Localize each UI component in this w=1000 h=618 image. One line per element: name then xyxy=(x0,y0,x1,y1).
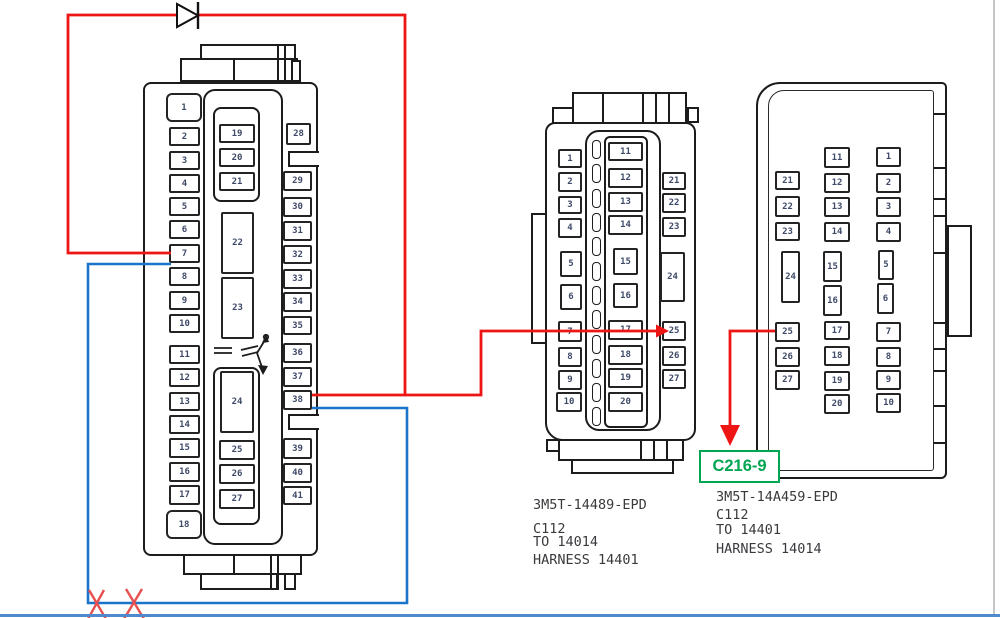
left-connector-pin-32: 32 xyxy=(283,245,312,264)
left-connector-pin-15: 15 xyxy=(169,438,200,458)
right-connector-pin-8: 8 xyxy=(876,347,901,367)
left-connector-pin-8: 8 xyxy=(169,267,200,286)
red-wire-arrowhead-3 xyxy=(720,425,740,446)
left-connector-pin-29: 29 xyxy=(283,171,312,191)
middle-connector-pin-15: 15 xyxy=(613,248,638,275)
left-connector-top-tab-small xyxy=(291,60,301,82)
middle-connector-pin-10: 10 xyxy=(556,392,582,412)
middle-connector-pin-21: 21 xyxy=(662,172,686,190)
middle-connector-pin-25: 25 xyxy=(662,321,686,341)
right-connector-pin-25: 25 xyxy=(775,322,800,342)
middle-connector-bottom-divider-3 xyxy=(666,439,668,459)
middle-connector-pin-8: 8 xyxy=(558,347,582,367)
right-connector-pin-13: 13 xyxy=(824,197,850,217)
right-connector-pin-9: 9 xyxy=(876,370,901,390)
middle-connector-slot-11 xyxy=(592,383,601,402)
left-connector-pin-26: 26 xyxy=(219,464,255,484)
middle-connector-harness: HARNESS 14401 xyxy=(533,552,639,568)
left-connector-pin-28: 28 xyxy=(286,123,311,145)
middle-connector-pin-16: 16 xyxy=(613,283,638,308)
middle-connector-pin-26: 26 xyxy=(662,346,686,366)
middle-connector-pin-11: 11 xyxy=(608,142,643,161)
right-connector-pin-2: 2 xyxy=(876,173,901,193)
left-connector-pin-23: 23 xyxy=(221,277,254,339)
right-connector-pin-16: 16 xyxy=(823,285,842,316)
middle-connector-slot-8 xyxy=(592,310,601,329)
middle-connector-to: TO 14014 xyxy=(533,534,598,550)
right-connector-edge-tick-2 xyxy=(934,167,947,169)
right-connector-to: TO 14401 xyxy=(716,522,781,538)
middle-connector-slot-2 xyxy=(592,164,601,183)
left-connector-key-notch-top xyxy=(288,151,319,167)
left-connector-pin-38: 38 xyxy=(283,390,312,410)
left-connector-pin-27: 27 xyxy=(219,489,255,509)
left-connector-pin-21: 21 xyxy=(219,172,255,191)
middle-connector-slot-4 xyxy=(592,213,601,232)
wiring-diagram-page: 3M5T-14489-EPD C112 TO 14014 HARNESS 144… xyxy=(0,0,1000,618)
left-connector-pin-17: 17 xyxy=(169,485,200,505)
middle-connector-slot-5 xyxy=(592,237,601,256)
right-connector-pin-24: 24 xyxy=(781,251,800,303)
right-connector-pin-5: 5 xyxy=(878,250,894,280)
right-connector-edge-tick-9 xyxy=(934,405,947,407)
left-connector-pin-35: 35 xyxy=(283,316,312,335)
middle-connector-bottom-divider-2 xyxy=(653,439,655,459)
left-connector-top-tab-line-2 xyxy=(284,44,286,82)
middle-connector-pin-1: 1 xyxy=(558,149,582,168)
middle-connector-pin-27: 27 xyxy=(662,369,686,389)
right-connector-pin-14: 14 xyxy=(824,222,850,242)
middle-connector-pin-3: 3 xyxy=(558,196,582,214)
left-connector-pin-2: 2 xyxy=(169,127,200,146)
middle-connector-pin-2: 2 xyxy=(558,172,582,192)
middle-connector-top-step-right xyxy=(687,107,699,123)
left-connector-key-notch-bottom xyxy=(288,414,319,430)
right-connector-edge-tick-1 xyxy=(934,113,947,115)
left-connector-pin-30: 30 xyxy=(283,197,312,217)
middle-connector-bottom-tab-lower xyxy=(571,459,674,474)
middle-connector-pin-22: 22 xyxy=(662,193,686,213)
middle-connector-pin-12: 12 xyxy=(608,168,643,188)
left-connector-top-tab-line-1 xyxy=(277,44,279,82)
left-connector-pin-9: 9 xyxy=(169,291,200,310)
right-connector-pin-1: 1 xyxy=(876,147,901,167)
left-connector-pin-14: 14 xyxy=(169,415,200,434)
left-connector-pin-41: 41 xyxy=(283,486,312,505)
middle-connector-pin-5: 5 xyxy=(560,251,582,277)
middle-connector-bottom-divider-1 xyxy=(640,439,642,459)
middle-connector-pin-7: 7 xyxy=(558,321,582,342)
right-connector-pin-15: 15 xyxy=(823,251,842,282)
right-connector-pin-19: 19 xyxy=(824,371,850,391)
left-connector-pin-18: 18 xyxy=(166,510,202,539)
middle-connector-part-number: 3M5T-14489-EPD xyxy=(533,497,647,513)
middle-connector-pin-4: 4 xyxy=(558,218,582,238)
left-connector-pin-1: 1 xyxy=(166,93,202,122)
right-connector-pin-27: 27 xyxy=(775,370,800,390)
left-connector-pin-33: 33 xyxy=(283,269,312,289)
middle-connector-pin-20: 20 xyxy=(608,392,643,412)
left-connector-pin-36: 36 xyxy=(283,343,312,363)
left-connector-pin-20: 20 xyxy=(219,148,255,167)
right-connector-edge-tick-5 xyxy=(934,252,947,254)
left-connector-pin-19: 19 xyxy=(219,124,255,143)
window-bottom-edge xyxy=(0,614,1000,617)
left-connector-pin-7: 7 xyxy=(169,244,200,263)
middle-connector-pin-9: 9 xyxy=(558,370,582,390)
right-connector-pin-18: 18 xyxy=(824,346,850,366)
middle-connector-top-divider-4 xyxy=(668,92,670,124)
left-connector-pin-12: 12 xyxy=(169,368,200,387)
right-connector-pin-6: 6 xyxy=(877,283,894,314)
middle-connector-pin-17: 17 xyxy=(608,320,643,340)
right-connector-edge-tick-8 xyxy=(934,370,947,372)
right-connector-harness: HARNESS 14014 xyxy=(716,541,822,557)
middle-connector-slot-6 xyxy=(592,262,601,281)
left-connector-pin-10: 10 xyxy=(169,314,200,333)
middle-connector-top-divider-1 xyxy=(602,92,604,124)
middle-connector-slot-1 xyxy=(592,140,601,159)
right-connector-pin-7: 7 xyxy=(876,322,901,342)
left-connector-pin-31: 31 xyxy=(283,221,312,241)
left-connector-bottom-tab-small xyxy=(284,573,296,590)
right-connector-pin-12: 12 xyxy=(824,173,850,193)
left-connector-pin-6: 6 xyxy=(169,220,200,239)
left-connector-bottom-tab-lower xyxy=(200,573,278,590)
left-connector-bottom-tab-line-1 xyxy=(270,554,272,590)
left-connector-pin-22: 22 xyxy=(221,212,254,274)
right-connector-pin-21: 21 xyxy=(775,171,800,190)
left-connector-pin-16: 16 xyxy=(169,462,200,482)
right-connector-pin-22: 22 xyxy=(775,196,800,217)
left-connector-pin-34: 34 xyxy=(283,292,312,312)
right-connector-pin-17: 17 xyxy=(824,321,850,340)
left-connector-bottom-tab-line-2 xyxy=(277,554,279,590)
middle-connector-top-divider-3 xyxy=(655,92,657,124)
right-connector-id: C112 xyxy=(716,507,749,523)
left-connector-pin-37: 37 xyxy=(283,367,312,387)
left-connector-pin-24: 24 xyxy=(220,371,254,433)
middle-connector-slot-3 xyxy=(592,189,601,208)
right-connector-pin-3: 3 xyxy=(876,197,901,217)
middle-connector-pin-19: 19 xyxy=(608,368,643,388)
right-connector-side-tab xyxy=(947,225,972,337)
middle-connector-pin-14: 14 xyxy=(608,215,643,235)
middle-connector-pin-13: 13 xyxy=(608,192,643,212)
right-connector-pin-10: 10 xyxy=(876,393,901,413)
middle-connector-slot-9 xyxy=(592,335,601,354)
left-connector-top-tab-divider xyxy=(233,58,235,82)
right-connector-edge-tick-3 xyxy=(934,198,947,200)
middle-connector-slot-12 xyxy=(592,407,601,426)
middle-connector-pin-24: 24 xyxy=(660,252,685,302)
right-connector-pin-4: 4 xyxy=(876,222,901,242)
left-connector-pin-39: 39 xyxy=(283,438,312,459)
right-connector-pin-23: 23 xyxy=(775,222,800,241)
left-connector-top-tab-lower xyxy=(180,58,298,82)
diode-icon xyxy=(177,4,198,27)
left-connector-pin-11: 11 xyxy=(169,345,200,364)
middle-connector-pin-6: 6 xyxy=(560,284,582,310)
right-connector-edge-tick-4 xyxy=(934,215,947,217)
middle-connector-pin-23: 23 xyxy=(662,217,686,237)
left-connector-pin-5: 5 xyxy=(169,197,200,216)
left-connector-bottom-tab-divider xyxy=(233,554,235,575)
right-connector-edge-tick-7 xyxy=(934,348,947,350)
right-connector-edge-tick-6 xyxy=(934,322,947,324)
middle-connector-slot-10 xyxy=(592,359,601,378)
right-connector-pin-20: 20 xyxy=(824,394,850,414)
left-connector-bottom-tab-upper xyxy=(183,554,302,575)
right-connector-pin-26: 26 xyxy=(775,347,800,367)
left-connector-pin-25: 25 xyxy=(219,440,255,460)
right-connector-edge-tick-10 xyxy=(934,442,947,444)
left-connector-pin-4: 4 xyxy=(169,174,200,193)
right-connector-pin-11: 11 xyxy=(824,147,850,168)
left-connector-pin-3: 3 xyxy=(169,151,200,170)
middle-connector-slot-7 xyxy=(592,286,601,305)
connector-callout-badge: C216-9 xyxy=(699,450,780,483)
right-connector-part-number: 3M5T-14A459-EPD xyxy=(716,489,838,505)
middle-connector-top-divider-2 xyxy=(642,92,644,124)
left-connector-pin-40: 40 xyxy=(283,463,312,483)
window-right-edge xyxy=(993,0,995,614)
middle-connector-pin-18: 18 xyxy=(608,345,643,365)
left-connector-pin-13: 13 xyxy=(169,392,200,411)
